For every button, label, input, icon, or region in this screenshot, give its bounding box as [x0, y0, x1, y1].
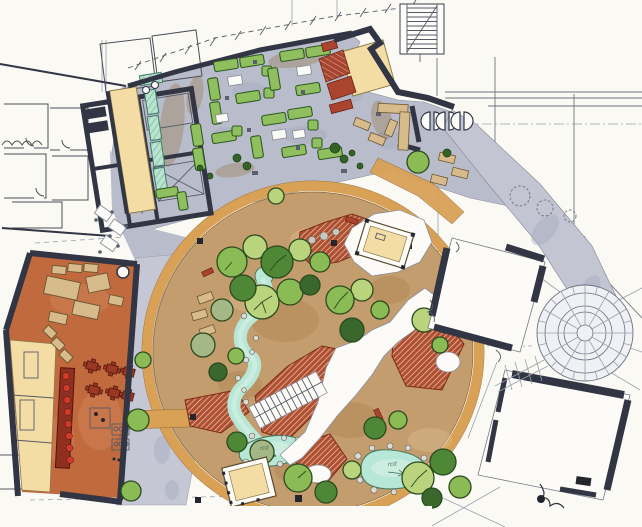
pond-b-label: rcd	[388, 461, 398, 468]
stair-detail-glyph	[400, 4, 444, 62]
cafe-building	[6, 253, 137, 502]
site-plan-drawing: rcd rcd	[0, 0, 642, 527]
pond-a-label: rcd	[260, 445, 270, 452]
radial-plaza	[537, 285, 633, 381]
paper-bottom-edge	[0, 506, 432, 527]
site-plan-svg: rcd rcd	[0, 0, 642, 527]
entry-column	[117, 266, 129, 278]
